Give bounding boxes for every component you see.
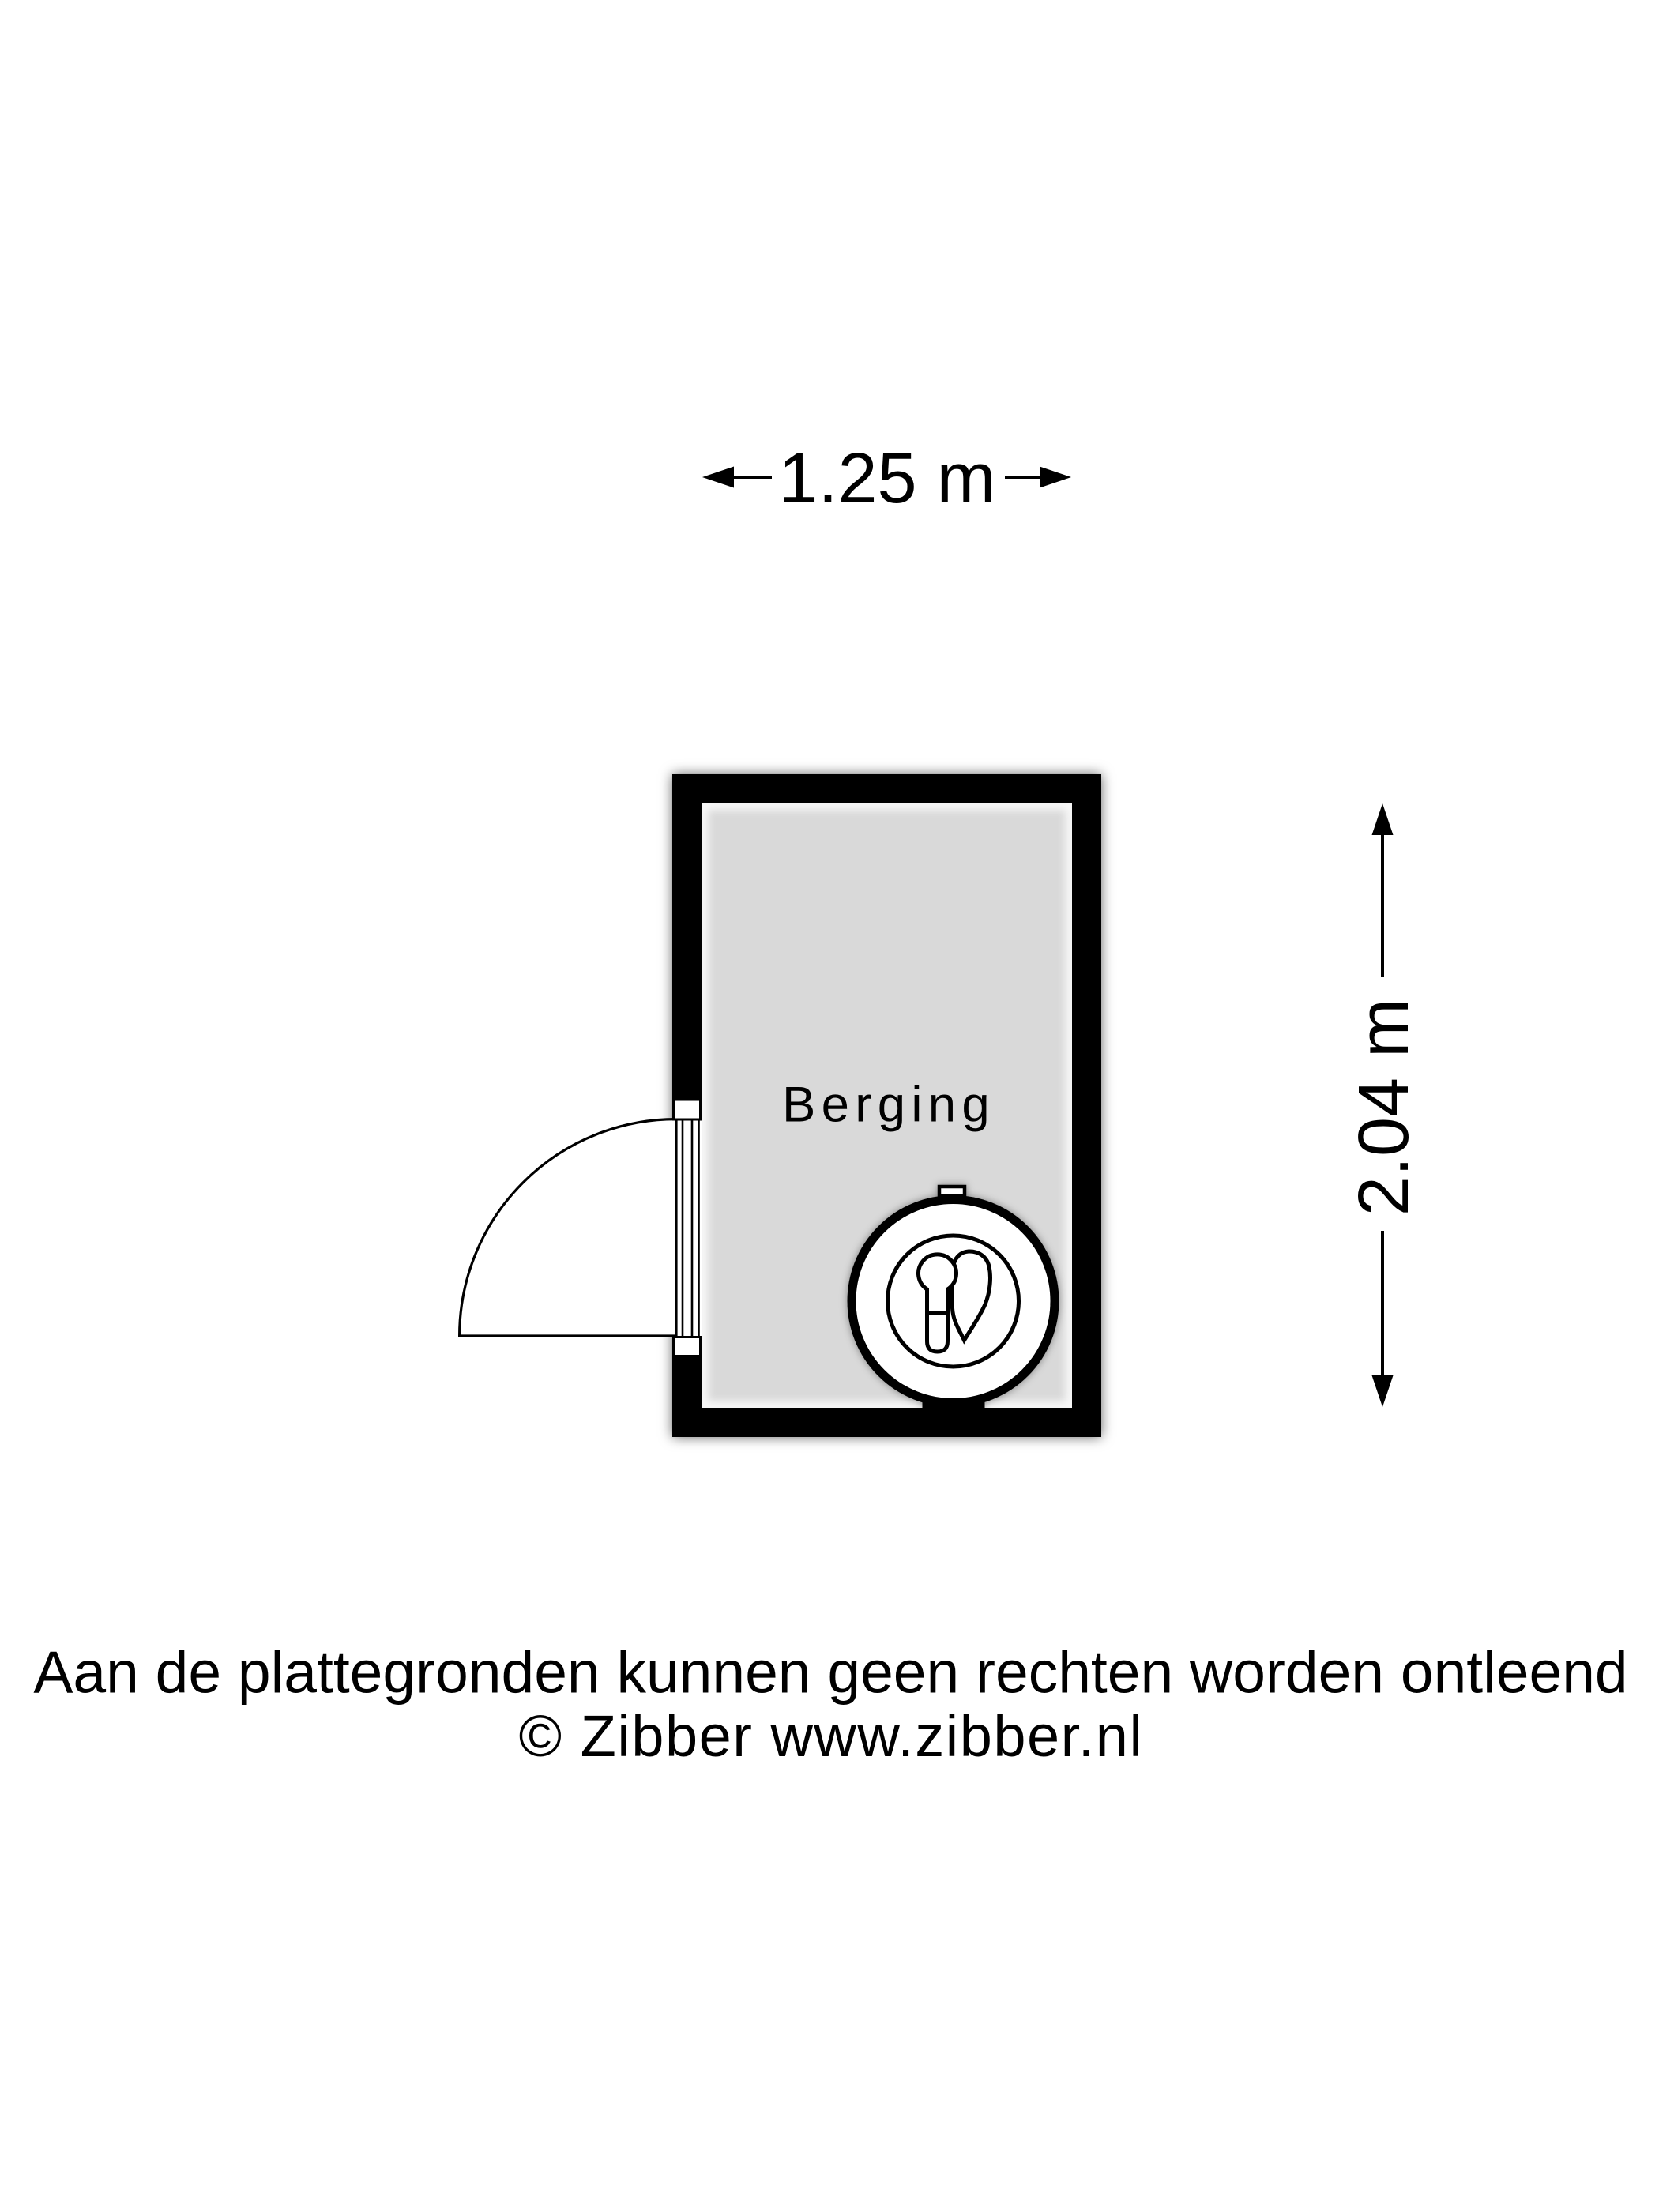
svg-text:1.25 m: 1.25 m bbox=[778, 439, 995, 518]
svg-text:© Zibber www.zibber.nl: © Zibber www.zibber.nl bbox=[519, 1703, 1144, 1769]
svg-text:Berging: Berging bbox=[782, 1077, 995, 1132]
svg-text:Aan de plattegronden kunnen ge: Aan de plattegronden kunnen geen rechten… bbox=[33, 1638, 1627, 1705]
svg-text:2.04 m: 2.04 m bbox=[1345, 999, 1424, 1216]
